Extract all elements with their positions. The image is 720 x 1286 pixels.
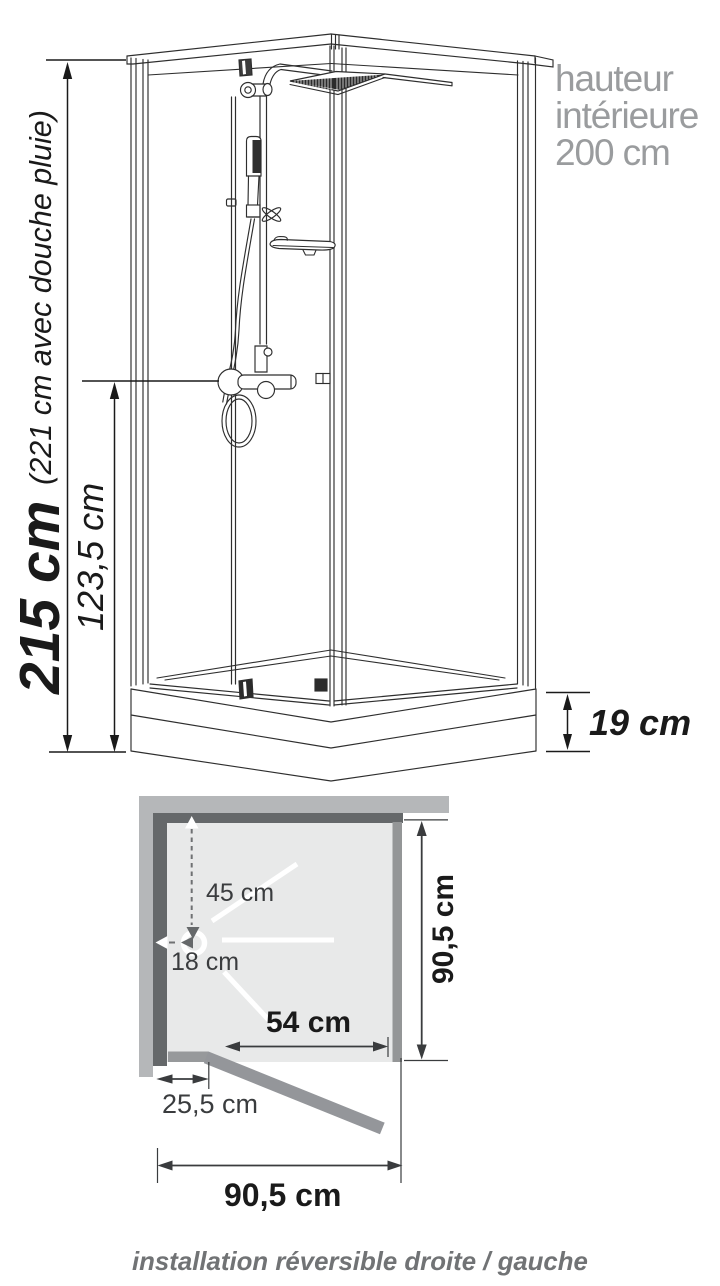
svg-text:45 cm: 45 cm: [206, 879, 274, 907]
svg-text:18 cm: 18 cm: [171, 948, 239, 976]
svg-text:25,5 cm: 25,5 cm: [162, 1089, 258, 1119]
svg-text:200 cm: 200 cm: [555, 132, 670, 173]
svg-text:19 cm: 19 cm: [589, 702, 691, 743]
svg-text:90,5 cm: 90,5 cm: [224, 1177, 341, 1213]
svg-text:90,5 cm: 90,5 cm: [427, 874, 460, 984]
svg-text:hauteur: hauteur: [555, 58, 674, 99]
svg-text:215 cm (221 cm avec douche plu: 215 cm (221 cm avec douche pluie): [8, 110, 72, 695]
svg-text:intérieure: intérieure: [555, 95, 698, 136]
svg-text:installation réversible droite: installation réversible droite / gauche: [132, 1248, 588, 1276]
svg-text:123,5 cm: 123,5 cm: [70, 483, 111, 631]
svg-text:54 cm: 54 cm: [266, 1006, 351, 1039]
